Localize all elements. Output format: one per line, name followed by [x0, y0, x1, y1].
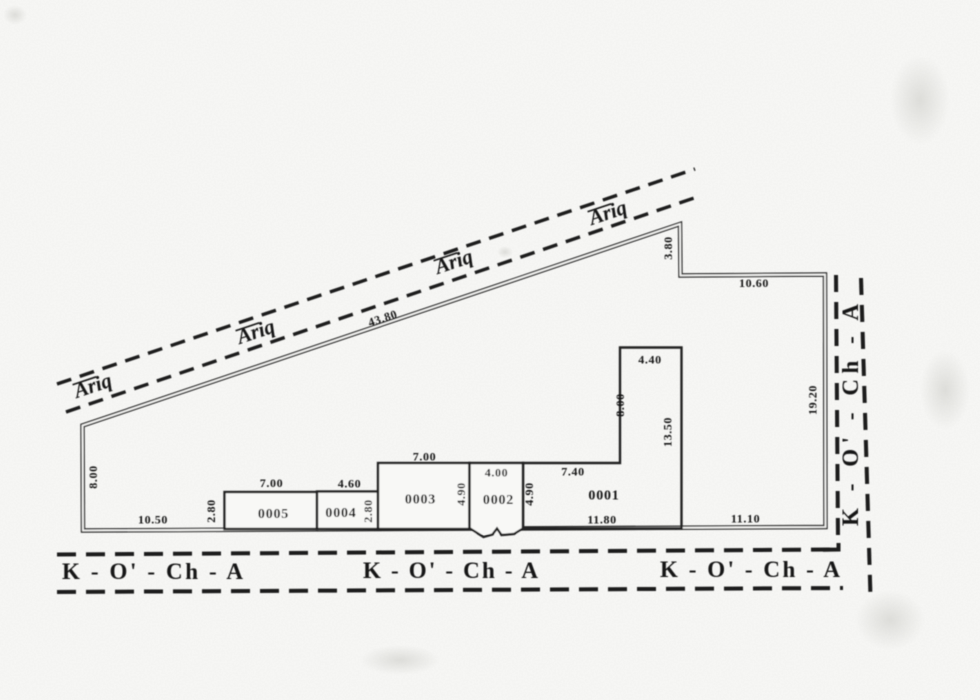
svg-text:0002: 0002 — [483, 493, 514, 508]
svg-text:2.80: 2.80 — [361, 499, 375, 522]
svg-text:4.90: 4.90 — [454, 482, 468, 505]
svg-text:0005: 0005 — [258, 507, 289, 522]
svg-text:4.60: 4.60 — [338, 477, 361, 491]
svg-text:7.00: 7.00 — [413, 450, 436, 464]
svg-text:7.40: 7.40 — [561, 465, 584, 479]
svg-text:3.80: 3.80 — [661, 236, 675, 259]
svg-text:11.10: 11.10 — [731, 512, 760, 526]
svg-text:0001: 0001 — [588, 489, 619, 504]
svg-text:19.20: 19.20 — [806, 385, 820, 415]
svg-text:4.00: 4.00 — [485, 466, 508, 480]
svg-text:0003: 0003 — [405, 493, 436, 508]
svg-text:11.80: 11.80 — [587, 513, 616, 527]
svg-text:10.50: 10.50 — [138, 513, 168, 527]
svg-text:13.50: 13.50 — [661, 417, 675, 447]
svg-text:7.00: 7.00 — [260, 476, 283, 490]
svg-text:8.00: 8.00 — [613, 393, 627, 416]
svg-text:0004: 0004 — [325, 506, 356, 521]
svg-text:2.80: 2.80 — [204, 499, 218, 522]
svg-text:10.60: 10.60 — [739, 276, 769, 290]
svg-text:4.40: 4.40 — [638, 353, 661, 367]
svg-text:4.90: 4.90 — [522, 482, 536, 505]
svg-text:8.00: 8.00 — [86, 465, 100, 488]
